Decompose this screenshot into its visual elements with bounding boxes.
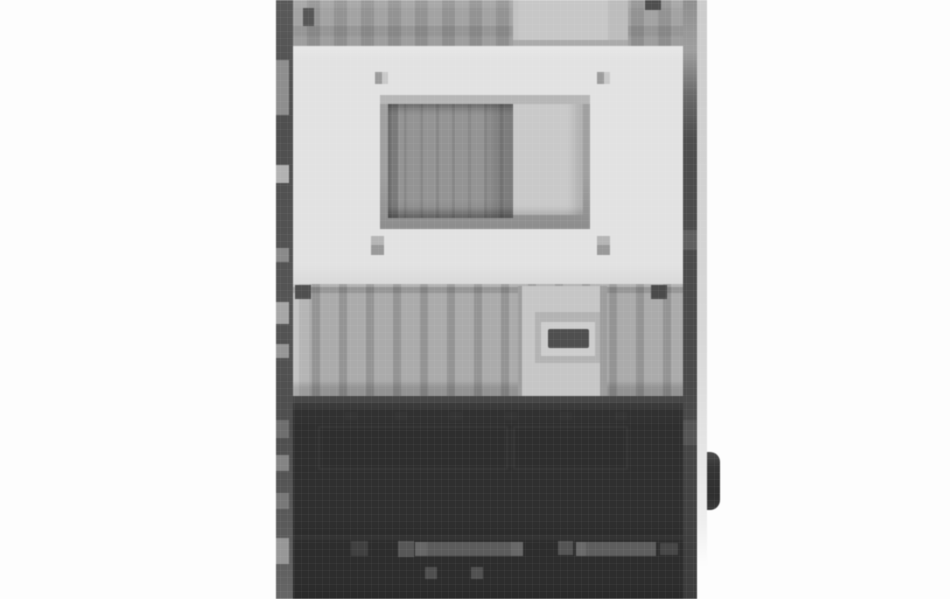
window-sliding-cover — [513, 104, 583, 215]
top-smooth-door-panel — [513, 0, 628, 40]
base-housing-dots — [293, 535, 697, 599]
mid-ribbed-panel — [293, 284, 683, 403]
window-dark-opening — [388, 104, 513, 218]
mid-bolt-left — [295, 285, 311, 299]
left-frame-shadow — [276, 420, 289, 438]
recessed-panel-fill — [320, 428, 506, 468]
cabinet-right-frame — [683, 0, 697, 599]
top-ribbed-panel — [293, 0, 683, 46]
base-dot — [425, 567, 437, 579]
white-face-plate — [293, 46, 683, 284]
vent-mark — [345, 412, 357, 420]
photo-canvas — [0, 0, 950, 599]
left-frame-highlight — [276, 455, 289, 471]
screw-top-right — [597, 72, 610, 84]
vent-mark — [450, 412, 462, 420]
mid-bolt-right — [651, 285, 667, 299]
vent-mark — [560, 412, 572, 420]
right-frame-highlight — [683, 230, 697, 250]
cabinet-right-edge-highlight — [697, 0, 707, 565]
left-frame-highlight — [276, 344, 289, 358]
drawer-handle-recess — [535, 312, 600, 363]
top-right-notch — [645, 0, 661, 10]
left-frame-highlight — [276, 165, 289, 183]
left-frame-highlight — [276, 538, 289, 564]
cabinet-left-frame — [276, 0, 293, 599]
right-frame-highlight — [683, 420, 697, 445]
drawer-handle-slot — [548, 329, 589, 348]
left-frame-highlight — [276, 248, 289, 262]
left-frame-highlight — [276, 60, 289, 115]
left-frame-highlight — [276, 493, 289, 509]
viewing-window-frame — [380, 95, 590, 229]
vent-mark — [395, 412, 407, 420]
screw-bottom-left — [371, 236, 384, 255]
base-dot — [471, 567, 483, 579]
drawer-strip — [518, 286, 607, 398]
screw-bottom-right — [597, 236, 610, 255]
machine-cabinet — [276, 0, 707, 599]
screw-top-left — [375, 72, 388, 84]
vent-mark — [505, 412, 517, 420]
top-left-notch — [303, 8, 314, 26]
left-frame-highlight — [276, 302, 289, 324]
mid-panel-shadow-strip — [293, 396, 683, 403]
lower-housing-fasteners — [293, 481, 683, 535]
recessed-panel-fill — [515, 428, 626, 468]
vent-mark — [615, 412, 627, 420]
